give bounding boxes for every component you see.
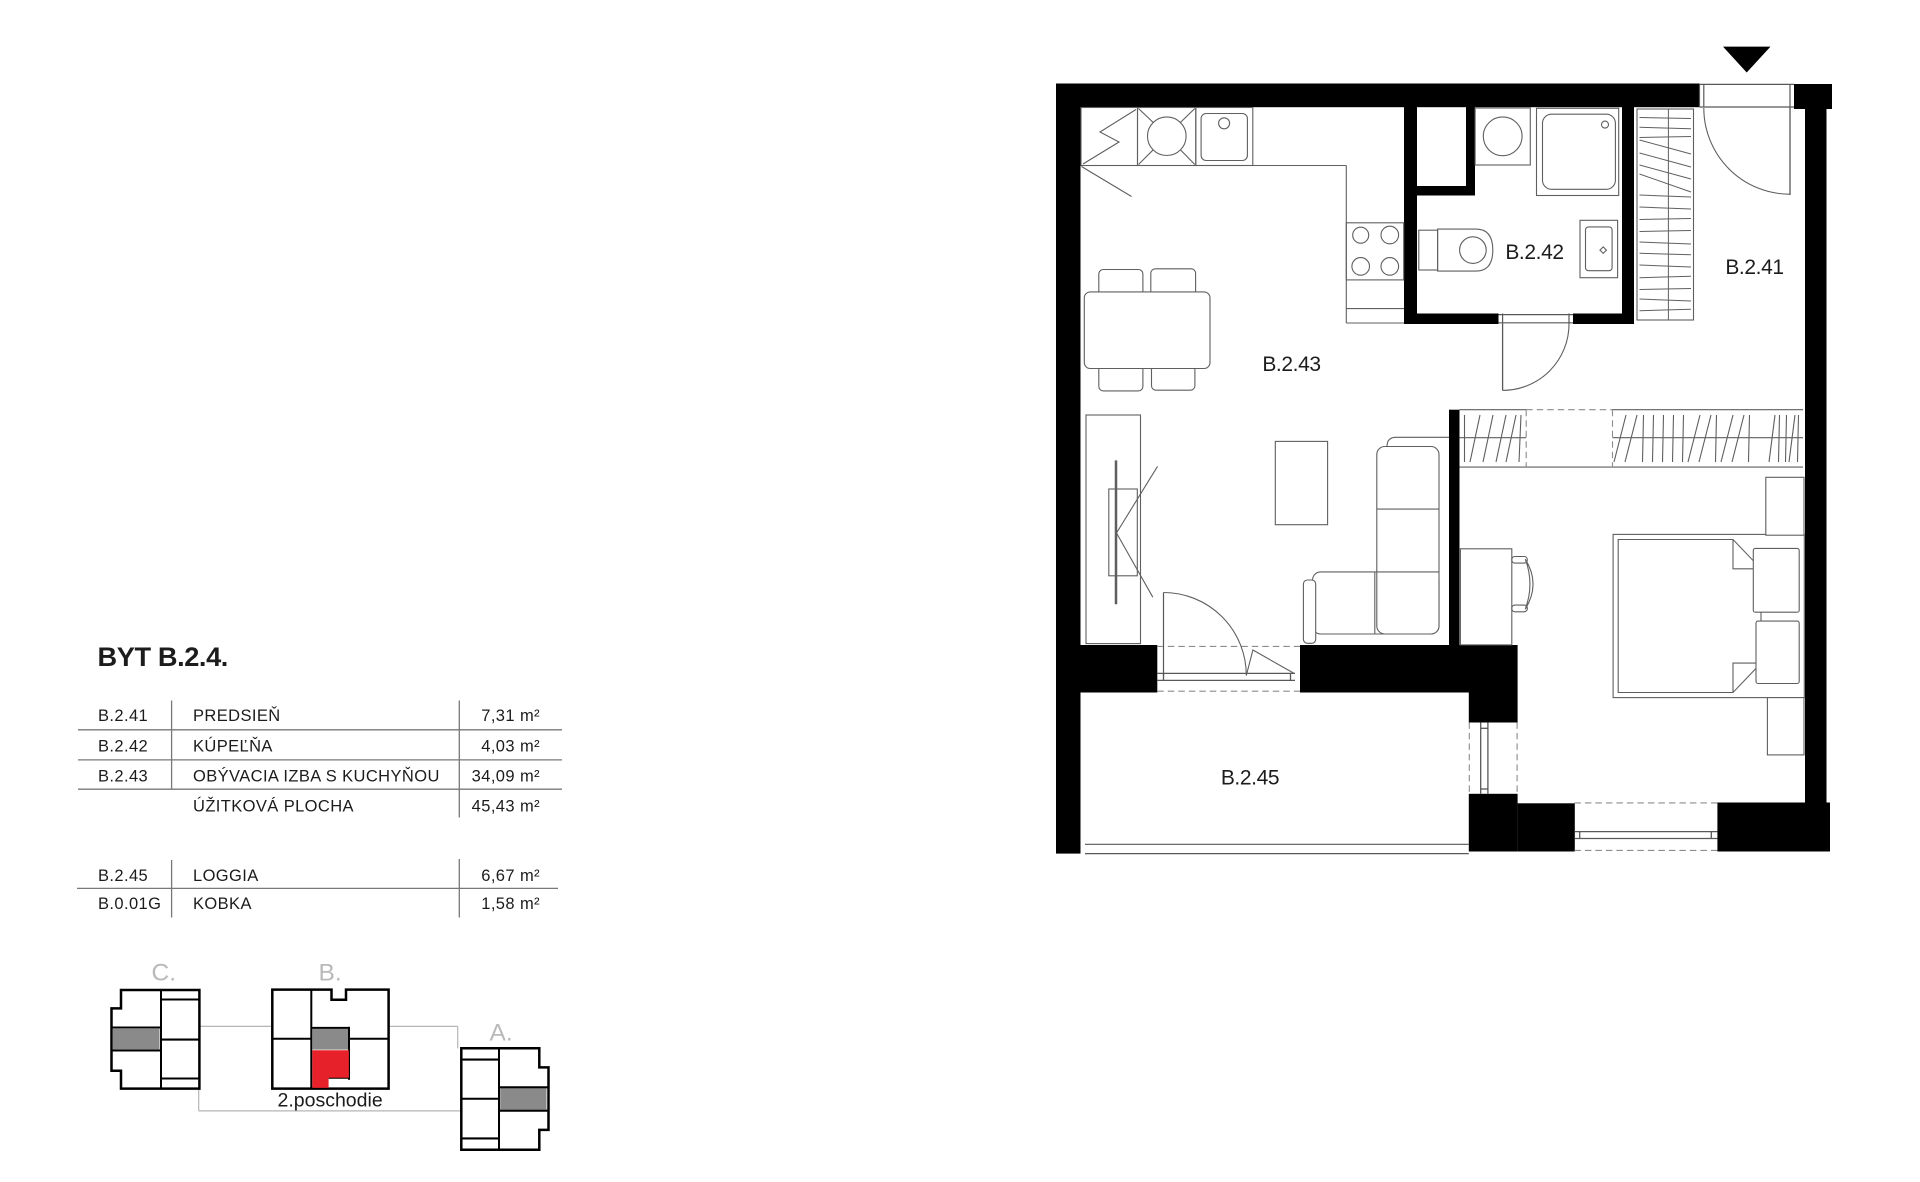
svg-text:OBÝVACIA IZBA S KUCHYŇOU: OBÝVACIA IZBA S KUCHYŇOU xyxy=(193,767,440,786)
svg-text:B.2.45: B.2.45 xyxy=(1221,767,1279,790)
svg-text:45,43 m²: 45,43 m² xyxy=(472,798,540,816)
svg-text:LOGGIA: LOGGIA xyxy=(193,867,259,885)
svg-text:6,67 m²: 6,67 m² xyxy=(481,867,540,885)
svg-text:KOBKA: KOBKA xyxy=(193,895,252,913)
svg-text:C.: C. xyxy=(152,960,177,987)
svg-text:ÚŽITKOVÁ PLOCHA: ÚŽITKOVÁ PLOCHA xyxy=(193,797,354,816)
svg-text:B.2.41: B.2.41 xyxy=(98,707,148,725)
svg-text:PREDSIEŇ: PREDSIEŇ xyxy=(193,706,281,725)
svg-text:B.2.42: B.2.42 xyxy=(1505,241,1563,264)
svg-text:BYT B.2.4.: BYT B.2.4. xyxy=(98,641,228,672)
svg-text:B.2.43: B.2.43 xyxy=(98,768,148,786)
svg-text:B.: B. xyxy=(319,960,342,987)
svg-text:A.: A. xyxy=(490,1020,513,1047)
svg-text:B.2.45: B.2.45 xyxy=(98,867,148,885)
svg-text:KÚPEĽŇA: KÚPEĽŇA xyxy=(193,737,273,756)
svg-text:2.poschodie: 2.poschodie xyxy=(278,1090,383,1112)
svg-text:B.2.42: B.2.42 xyxy=(98,738,148,756)
svg-text:B.2.43: B.2.43 xyxy=(1262,353,1320,376)
svg-text:1,58 m²: 1,58 m² xyxy=(481,895,540,913)
svg-text:7,31 m²: 7,31 m² xyxy=(481,707,540,725)
svg-text:B.0.01G: B.0.01G xyxy=(98,895,161,913)
svg-text:34,09 m²: 34,09 m² xyxy=(472,768,540,786)
svg-text:4,03 m²: 4,03 m² xyxy=(481,738,540,756)
svg-text:B.2.41: B.2.41 xyxy=(1725,256,1783,279)
